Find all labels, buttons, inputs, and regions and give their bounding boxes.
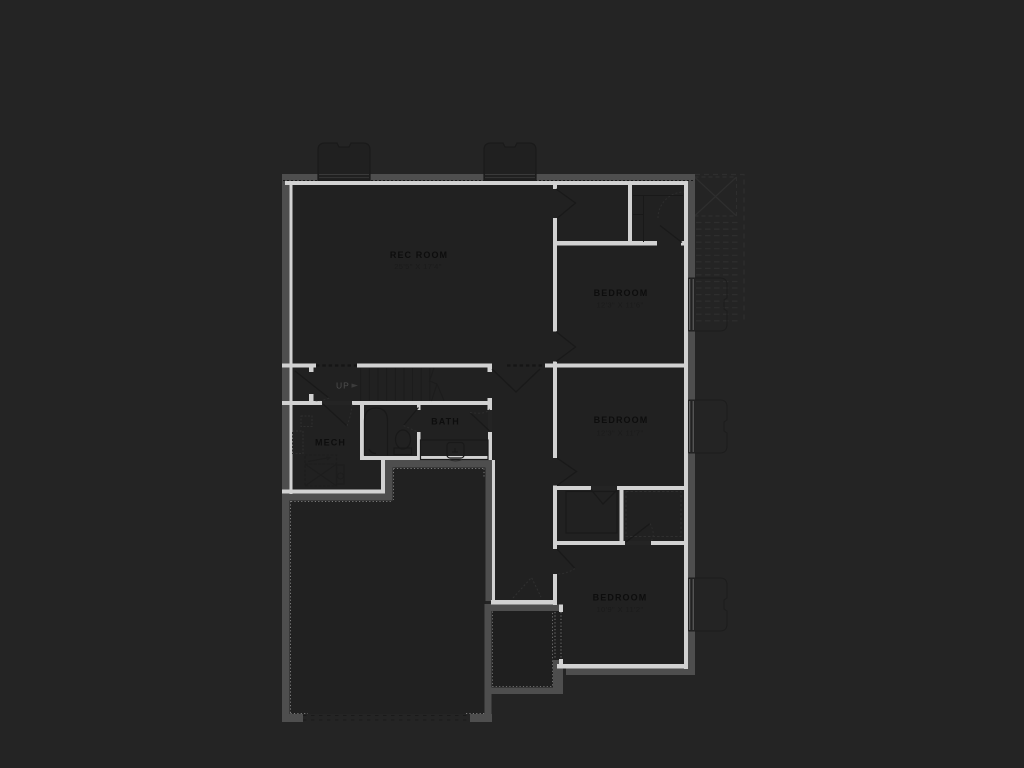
svg-text:10'9" X 11'2": 10'9" X 11'2" <box>596 605 643 614</box>
svg-text:BEDROOM: BEDROOM <box>594 415 649 425</box>
svg-text:REC ROOM: REC ROOM <box>390 250 448 260</box>
svg-text:BEDROOM: BEDROOM <box>593 593 648 603</box>
svg-text:BATH: BATH <box>431 417 460 427</box>
svg-text:MECH: MECH <box>315 438 346 448</box>
svg-text:12'3" X 11'7": 12'3" X 11'7" <box>596 429 643 438</box>
svg-text:12'3" X 11'6": 12'3" X 11'6" <box>596 301 643 310</box>
svg-text:25'5" X 17'4": 25'5" X 17'4" <box>394 262 442 271</box>
svg-text:BEDROOM: BEDROOM <box>594 288 649 298</box>
svg-text:UP: UP <box>336 381 350 391</box>
